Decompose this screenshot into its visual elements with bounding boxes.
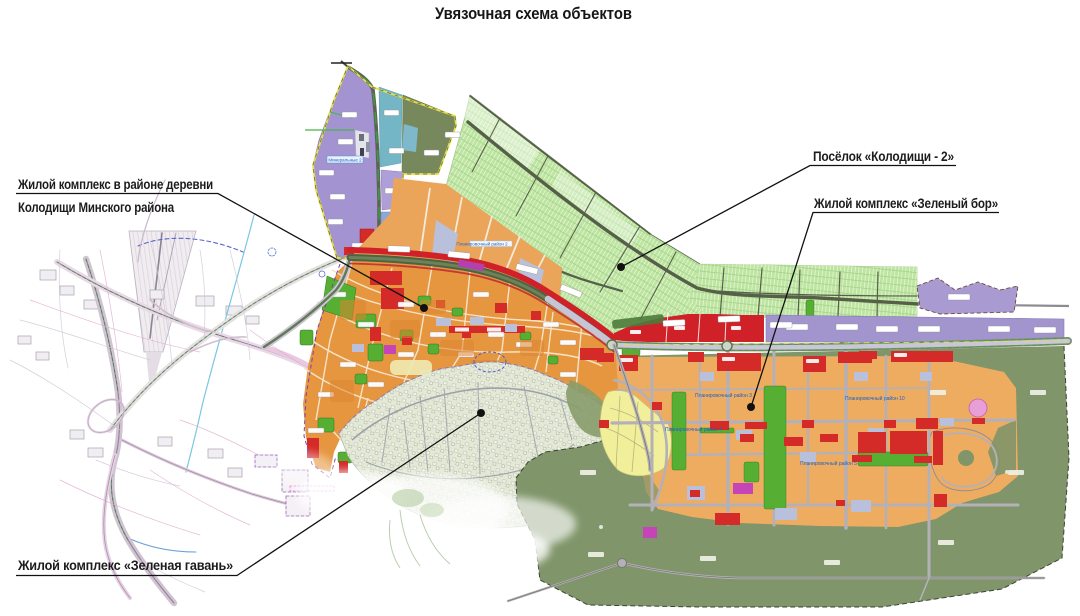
svg-text:Планировочный район 3: Планировочный район 3 (695, 392, 752, 399)
svg-text:Планировочный район 10: Планировочный район 10 (845, 395, 905, 402)
svg-text:Планировочный район 2: Планировочный район 2 (456, 241, 508, 247)
svg-text:Колодищи Минского района: Колодищи Минского района (18, 200, 175, 215)
svg-text:Планировочный район 4: Планировочный район 4 (665, 426, 722, 433)
svg-text:Жилой комплекс «Зеленый бор»: Жилой комплекс «Зеленый бор» (813, 196, 998, 211)
svg-text:Жилой комплекс «Зеленая гавань: Жилой комплекс «Зеленая гавань» (17, 558, 233, 573)
svg-text:Увязочная схема объектов: Увязочная схема объектов (435, 4, 632, 23)
svg-text:Посёлок «Колодищи - 2»: Посёлок «Колодищи - 2» (813, 149, 954, 164)
svg-text:Жилой комплекс в районе деревн: Жилой комплекс в районе деревни (17, 177, 213, 192)
svg-text:Планировочный район 5: Планировочный район 5 (800, 460, 857, 467)
svg-text:Минеральные 2: Минеральные 2 (328, 158, 362, 163)
